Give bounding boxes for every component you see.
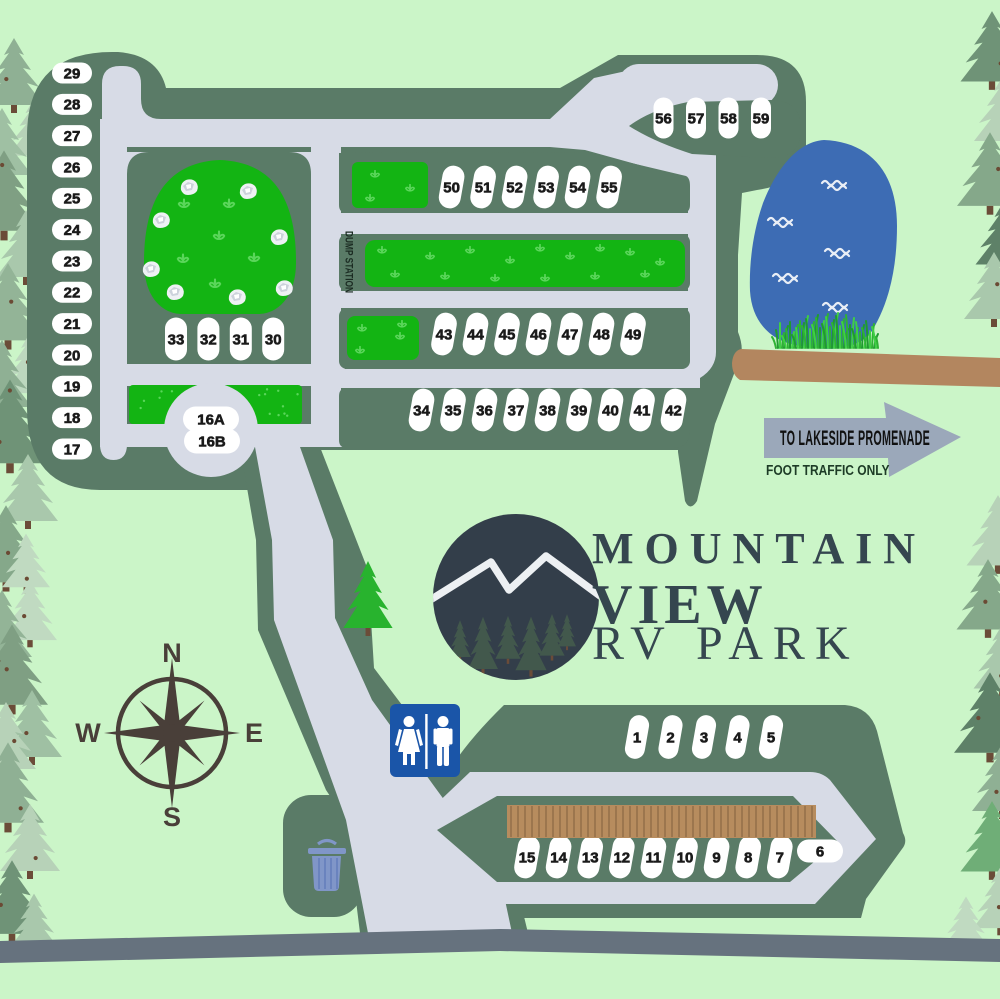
svg-text:18: 18 — [64, 410, 81, 427]
svg-text:RV PARK: RV PARK — [592, 617, 860, 670]
svg-text:5: 5 — [767, 729, 775, 746]
svg-text:34: 34 — [413, 402, 430, 419]
svg-text:58: 58 — [720, 110, 737, 127]
svg-text:6: 6 — [816, 843, 824, 860]
svg-text:46: 46 — [530, 326, 547, 343]
svg-text:N: N — [162, 638, 182, 668]
svg-text:26: 26 — [64, 159, 81, 176]
svg-text:E: E — [245, 718, 263, 748]
svg-text:40: 40 — [602, 402, 619, 419]
svg-text:8: 8 — [744, 849, 752, 866]
svg-text:13: 13 — [582, 849, 599, 866]
svg-text:38: 38 — [539, 402, 556, 419]
svg-text:45: 45 — [499, 326, 516, 343]
svg-text:20: 20 — [64, 347, 81, 364]
svg-text:48: 48 — [593, 326, 610, 343]
svg-text:DUMP STATION: DUMP STATION — [343, 231, 355, 293]
svg-text:54: 54 — [569, 179, 586, 196]
svg-text:3: 3 — [700, 729, 708, 746]
svg-text:35: 35 — [445, 402, 462, 419]
svg-text:14: 14 — [550, 849, 567, 866]
svg-text:31: 31 — [232, 331, 249, 348]
svg-text:37: 37 — [508, 402, 525, 419]
svg-text:23: 23 — [64, 253, 81, 270]
svg-text:42: 42 — [665, 402, 682, 419]
svg-text:27: 27 — [64, 128, 81, 145]
svg-text:25: 25 — [64, 191, 81, 208]
svg-text:30: 30 — [265, 331, 282, 348]
svg-text:28: 28 — [64, 97, 81, 114]
svg-text:2: 2 — [666, 729, 674, 746]
svg-text:21: 21 — [64, 316, 81, 333]
svg-text:57: 57 — [688, 110, 705, 127]
svg-text:39: 39 — [571, 402, 588, 419]
svg-text:19: 19 — [64, 379, 81, 396]
svg-text:MOUNTAIN: MOUNTAIN — [592, 524, 926, 573]
svg-text:43: 43 — [436, 326, 453, 343]
svg-text:50: 50 — [443, 179, 460, 196]
svg-text:44: 44 — [467, 326, 484, 343]
svg-text:11: 11 — [645, 849, 661, 866]
svg-text:49: 49 — [625, 326, 642, 343]
svg-text:56: 56 — [655, 110, 672, 127]
svg-text:W: W — [75, 718, 101, 748]
svg-text:TO LAKESIDE PROMENADE: TO LAKESIDE PROMENADE — [780, 426, 930, 450]
svg-text:53: 53 — [538, 179, 555, 196]
svg-text:17: 17 — [64, 441, 81, 458]
svg-text:24: 24 — [64, 222, 81, 239]
svg-text:10: 10 — [677, 849, 694, 866]
svg-text:S: S — [163, 802, 181, 832]
svg-text:33: 33 — [168, 331, 185, 348]
svg-text:51: 51 — [475, 179, 492, 196]
svg-text:59: 59 — [753, 110, 770, 127]
svg-text:9: 9 — [712, 849, 720, 866]
svg-text:29: 29 — [64, 65, 81, 82]
svg-text:16B: 16B — [198, 433, 226, 450]
svg-text:4: 4 — [733, 729, 742, 746]
svg-text:22: 22 — [64, 285, 81, 302]
svg-text:55: 55 — [601, 179, 618, 196]
svg-text:36: 36 — [476, 402, 493, 419]
svg-text:41: 41 — [634, 402, 651, 419]
svg-text:1: 1 — [633, 729, 641, 746]
svg-text:32: 32 — [200, 331, 217, 348]
svg-text:12: 12 — [613, 849, 630, 866]
svg-text:52: 52 — [506, 179, 523, 196]
svg-text:7: 7 — [776, 849, 784, 866]
svg-text:FOOT TRAFFIC ONLY: FOOT TRAFFIC ONLY — [766, 462, 890, 479]
svg-text:15: 15 — [519, 849, 536, 866]
svg-text:47: 47 — [562, 326, 579, 343]
svg-text:16A: 16A — [197, 411, 225, 428]
